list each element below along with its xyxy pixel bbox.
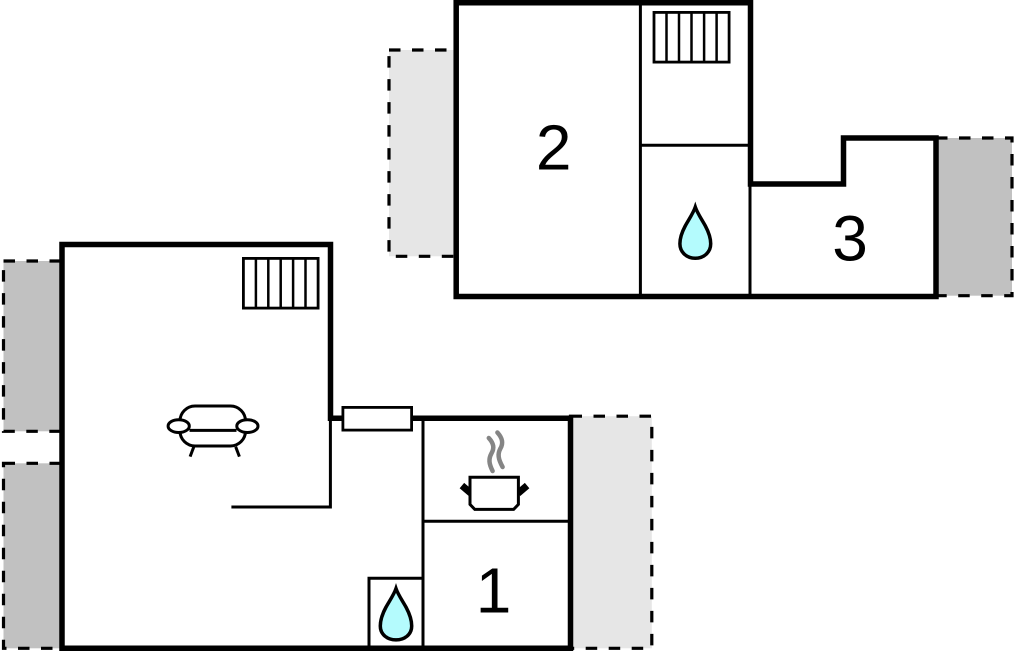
svg-text:3: 3 <box>832 203 868 275</box>
svg-text:1: 1 <box>476 555 512 627</box>
svg-text:2: 2 <box>536 112 572 184</box>
